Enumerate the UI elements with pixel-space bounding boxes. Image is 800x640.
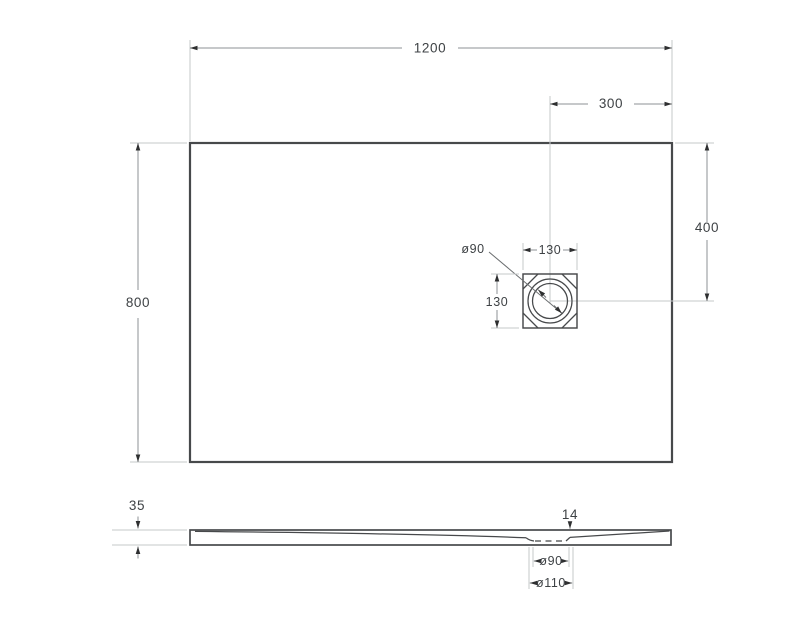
dim-edge-height: 35	[112, 498, 187, 559]
drain-hole-diameter-label: ø90	[461, 242, 484, 256]
drain-zone-height-label: 14	[562, 507, 578, 522]
drain-offset-right-label: 300	[599, 96, 623, 111]
drain-flange-height-label: 130	[486, 295, 509, 309]
overall-width-label: 1200	[414, 41, 446, 56]
dim-drain-zone-height: 14	[562, 507, 578, 529]
drawing-canvas: 1200 300 800 400	[0, 0, 800, 640]
drain-flange-width-label: 130	[539, 243, 562, 257]
dim-drain-hole-diameter: ø90	[533, 547, 569, 568]
top-view: 1200 300 800 400	[126, 40, 719, 462]
edge-height-label: 35	[129, 498, 145, 513]
overall-depth-label: 800	[126, 295, 150, 310]
dim-drain-offset-right: 300	[550, 96, 672, 111]
dim-overall-width: 1200	[190, 40, 672, 141]
tray-outline-top	[190, 143, 672, 462]
shower-tray-technical-drawing: 1200 300 800 400	[0, 0, 800, 640]
dim-overall-depth: 800	[126, 143, 187, 462]
drain-hole-diameter-side-label: ø90	[539, 554, 562, 568]
drain-recess-diameter-label: ø110	[536, 576, 566, 590]
side-view: 35 14 ø90 ø110	[112, 498, 671, 590]
drain-offset-top-label: 400	[695, 220, 719, 235]
dim-drain-offset-top: 400	[675, 143, 719, 301]
